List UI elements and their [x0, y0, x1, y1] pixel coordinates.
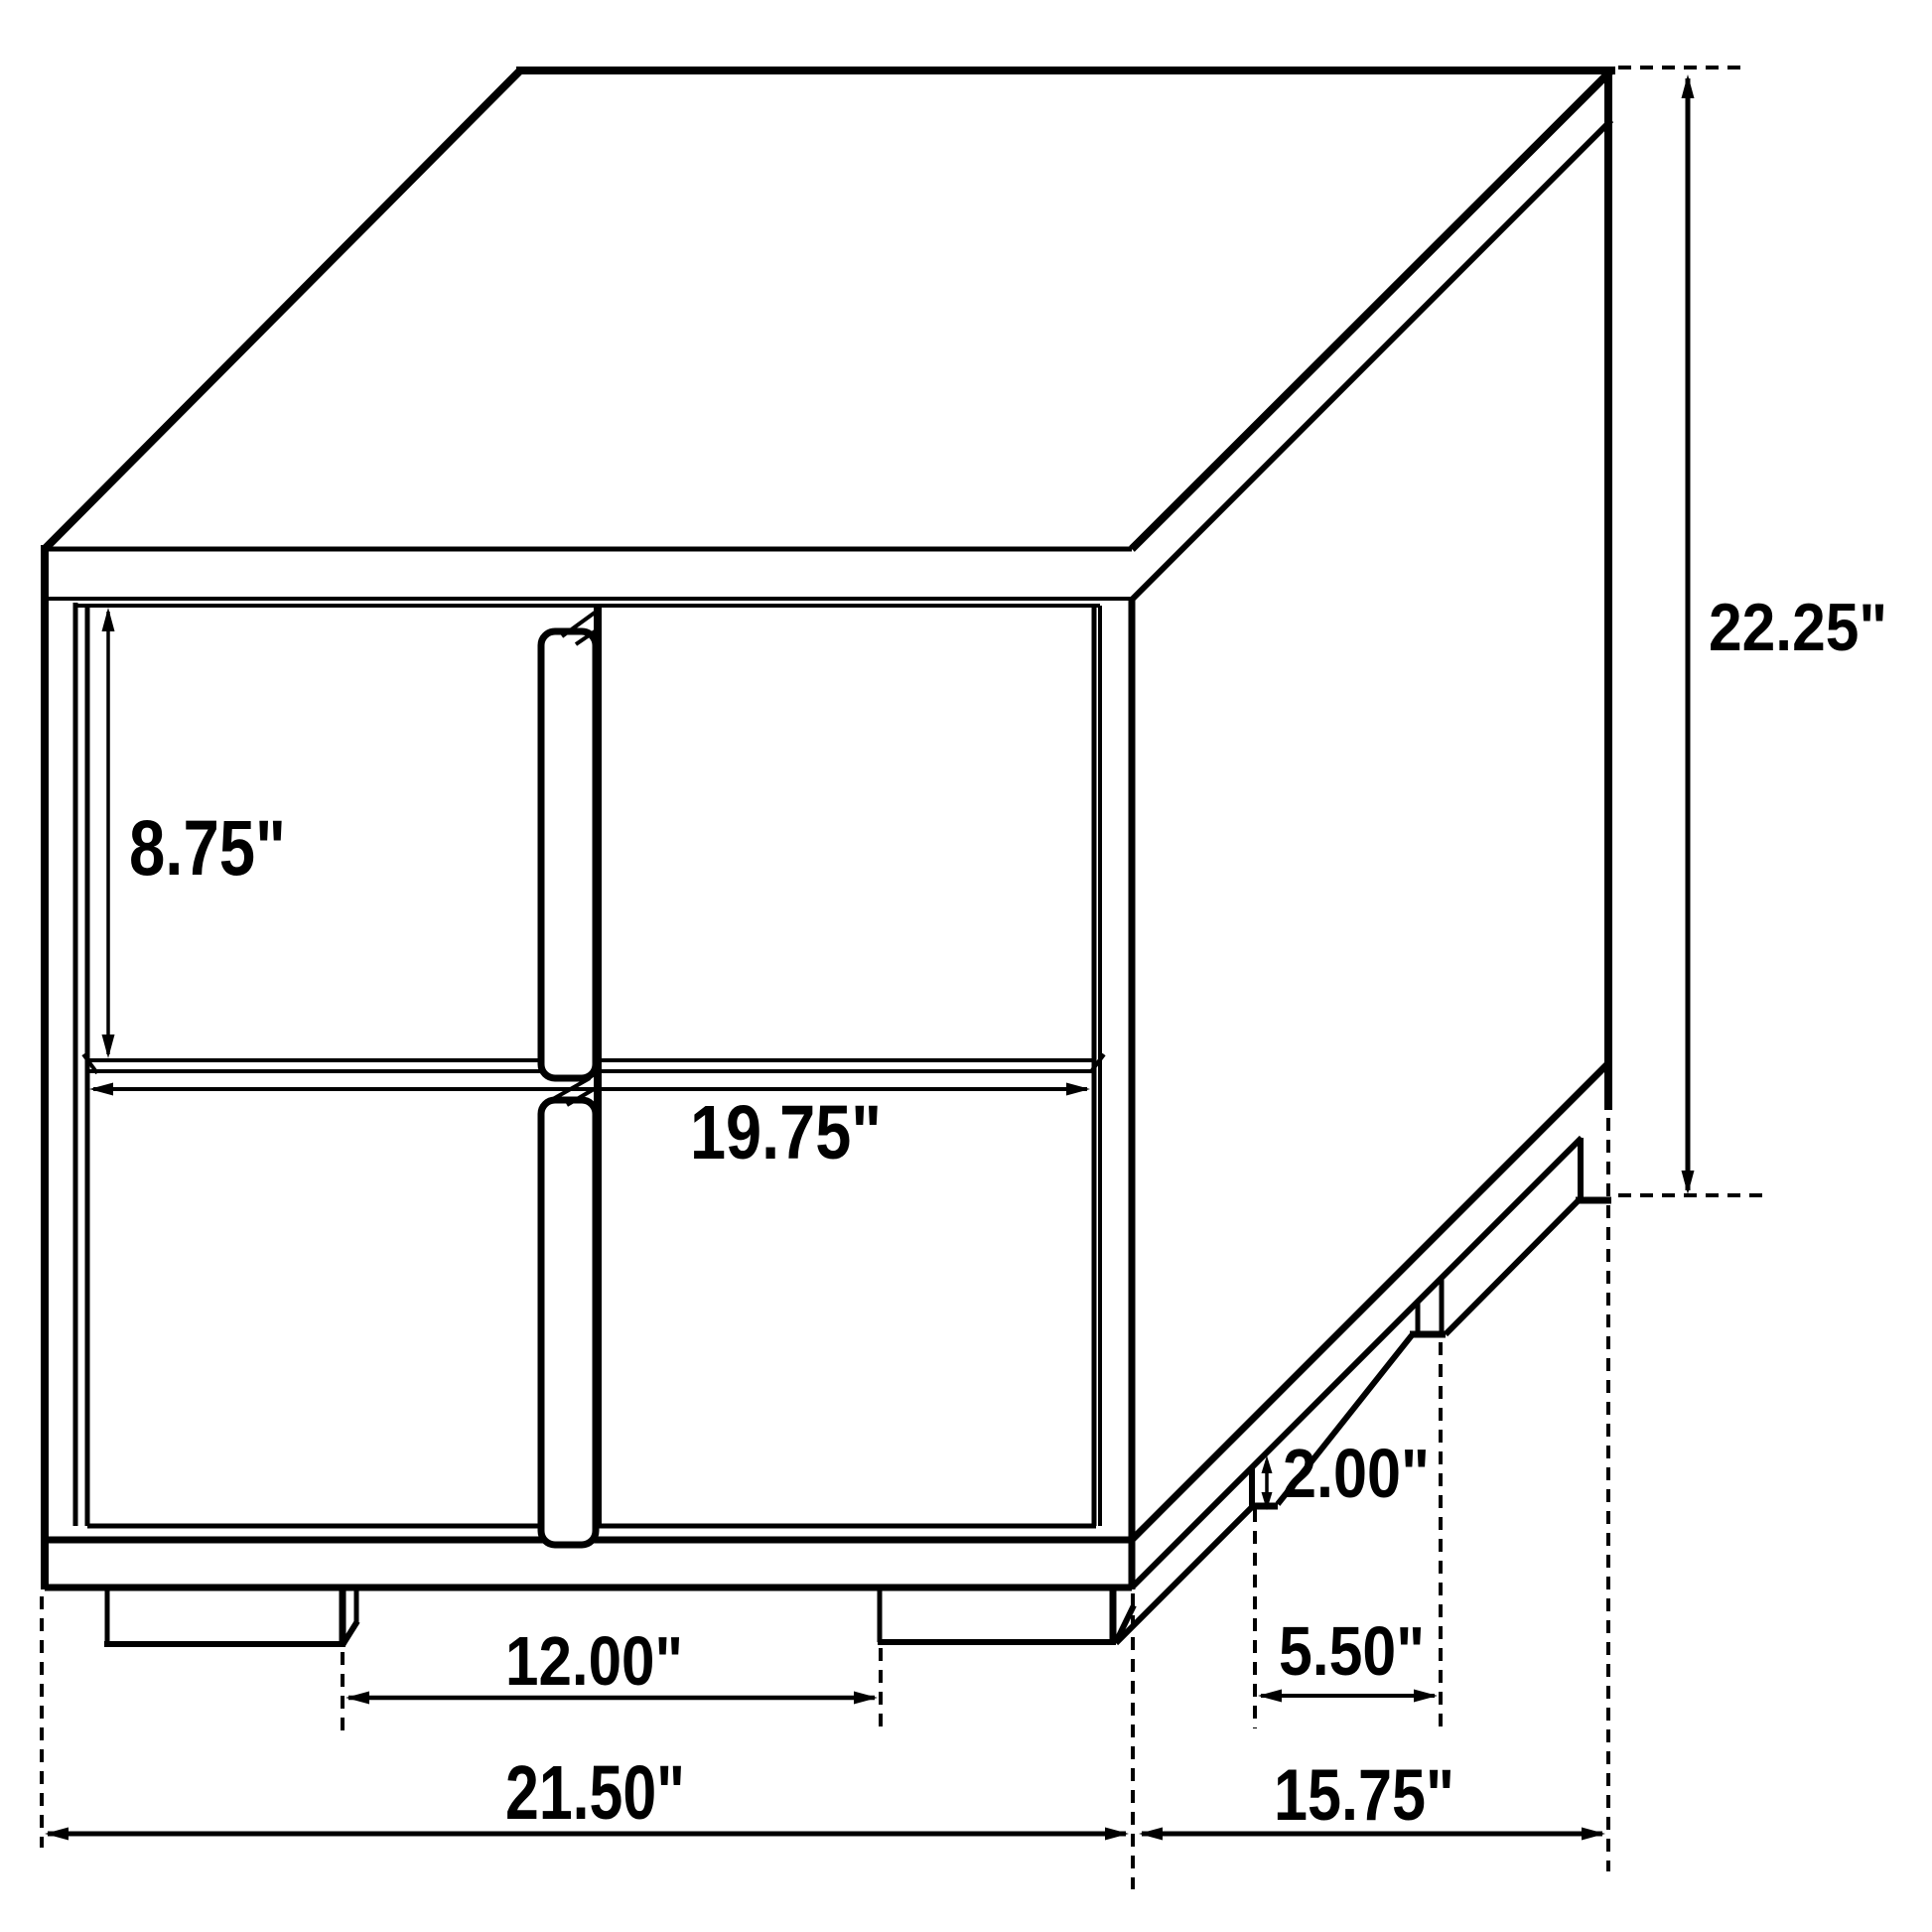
- svg-text:21.50": 21.50": [505, 1750, 685, 1836]
- svg-text:12.00": 12.00": [505, 1622, 683, 1700]
- svg-text:22.25": 22.25": [1709, 590, 1887, 665]
- svg-text:2.00": 2.00": [1283, 1435, 1430, 1512]
- svg-text:5.50": 5.50": [1279, 1612, 1425, 1690]
- svg-text:19.75": 19.75": [690, 1090, 882, 1175]
- svg-text:15.75": 15.75": [1274, 1755, 1454, 1836]
- svg-text:8.75": 8.75": [129, 803, 286, 892]
